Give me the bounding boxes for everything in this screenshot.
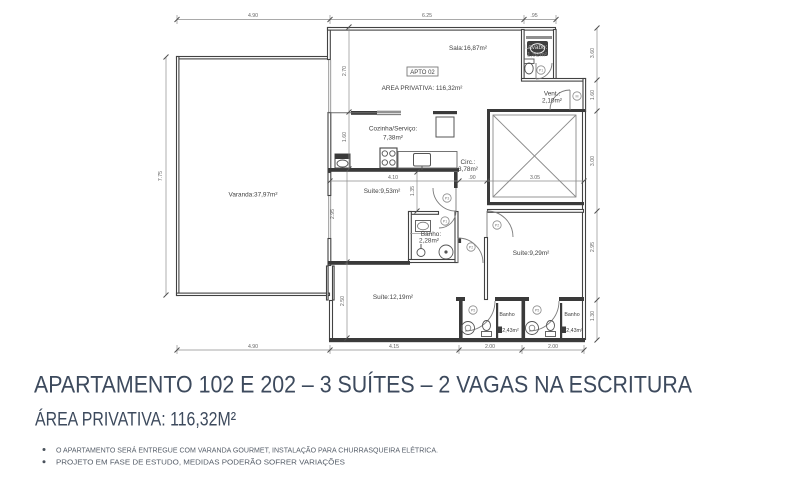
svg-text:1,52m²: 1,52m² [527,52,547,59]
svg-text:Banho: Banho [499,312,514,318]
svg-text:M: M [576,94,579,98]
svg-text:2.70: 2.70 [342,66,348,76]
svg-text:P1: P1 [443,219,447,223]
svg-text:2,28m²: 2,28m² [419,238,439,245]
svg-text:P1: P1 [539,68,543,72]
svg-text:.90: .90 [468,175,475,181]
svg-text:Vent.:: Vent.: [544,91,561,98]
svg-text:1.60: 1.60 [590,90,596,100]
svg-text:Suíte:9,53m²: Suíte:9,53m² [364,188,401,195]
svg-text:1.30: 1.30 [590,311,596,321]
svg-text:4.90: 4.90 [248,344,258,350]
svg-text:4.10: 4.10 [388,175,398,181]
svg-text:1.35: 1.35 [410,186,416,196]
svg-text:P5: P5 [471,308,475,312]
svg-text:APTO 02: APTO 02 [410,70,435,76]
svg-text:3.05: 3.05 [530,175,540,181]
svg-text:2,10m²: 2,10m² [542,98,562,105]
svg-text:P2: P2 [495,223,499,227]
svg-text:Sala:16,87m²: Sala:16,87m² [449,45,487,52]
svg-text:3.60: 3.60 [590,48,596,58]
svg-text:4.15: 4.15 [389,344,399,350]
svg-text:O APARTAMENTO SERÁ ENTREGUE CO: O APARTAMENTO SERÁ ENTREGUE COM VARANDA … [56,445,438,454]
svg-text:1.60: 1.60 [342,132,348,142]
svg-text:2.95: 2.95 [330,209,336,219]
svg-text:2.50: 2.50 [340,296,346,306]
svg-text:Suíte:9,29m²: Suíte:9,29m² [513,250,550,257]
svg-text:4.90: 4.90 [248,13,258,19]
svg-text:2.00: 2.00 [485,344,495,350]
svg-text:7.75: 7.75 [158,171,164,181]
svg-text:PROJETO EM FASE DE ESTUDO, MED: PROJETO EM FASE DE ESTUDO, MEDIDAS PODER… [56,458,345,467]
svg-text:ÁREA PRIVATIVA: 116,32M²: ÁREA PRIVATIVA: 116,32M² [35,410,236,431]
svg-text:2,43m²: 2,43m² [502,328,519,334]
svg-text:2,43m²: 2,43m² [566,328,583,334]
svg-text:3,78m²: 3,78m² [458,166,478,173]
svg-text:P5: P5 [535,308,539,312]
svg-text:Suíte:12,19m²: Suíte:12,19m² [373,294,413,301]
svg-text:3.00: 3.00 [590,156,596,166]
svg-text:AREA PRIVATIVA: 116,32m²: AREA PRIVATIVA: 116,32m² [382,85,463,92]
svg-text:Varanda:37,97m²: Varanda:37,97m² [229,192,278,199]
svg-text:Cozinha/Serviço:: Cozinha/Serviço: [369,126,418,133]
svg-text:.95: .95 [530,13,537,19]
svg-text:Circ.:: Circ.: [461,159,476,166]
svg-text:P2: P2 [469,245,473,249]
svg-text:6.25: 6.25 [422,13,432,19]
svg-text:Lavabo:: Lavabo: [525,44,548,51]
svg-text:2.95: 2.95 [590,242,596,252]
svg-text:7,38m²: 7,38m² [383,135,403,142]
svg-text:P3: P3 [445,196,449,200]
svg-text:2.00: 2.00 [548,344,558,350]
svg-text:Banho: Banho [564,312,579,318]
svg-text:APARTAMENTO 102 E 202 – 3 SUÍT: APARTAMENTO 102 E 202 – 3 SUÍTES – 2 VAG… [34,372,692,399]
